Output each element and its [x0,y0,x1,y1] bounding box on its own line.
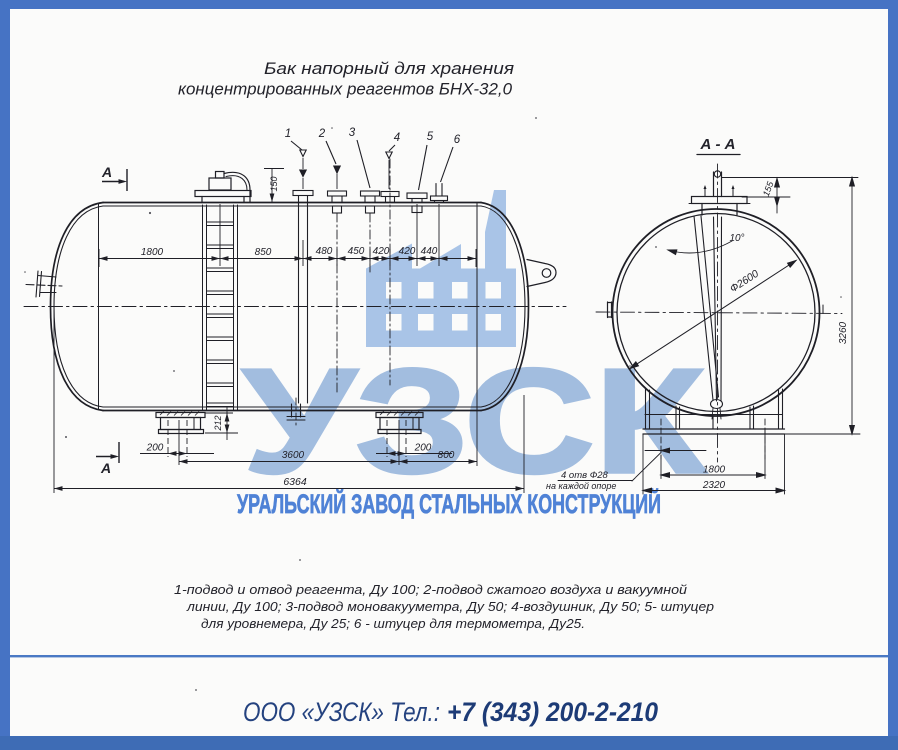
svg-text:3: 3 [349,127,356,139]
svg-text:850: 850 [255,247,272,258]
svg-text:4 отв Ф28: 4 отв Ф28 [561,470,609,481]
svg-text:200: 200 [414,443,432,454]
svg-text:Бак напорный для хранения: Бак напорный для хранения [264,60,514,78]
svg-text:6364: 6364 [283,476,307,488]
svg-text:480: 480 [316,246,333,257]
svg-text:А - А: А - А [700,136,736,153]
svg-text:1-подвод и отвод реагента, Ду: 1-подвод и отвод реагента, Ду 100; 2-под… [174,583,687,597]
svg-text:10°: 10° [729,233,744,244]
svg-text:4: 4 [394,132,400,144]
svg-text:6: 6 [454,134,461,146]
svg-text:3600: 3600 [282,450,305,461]
svg-text:200: 200 [146,443,164,454]
svg-text:800: 800 [438,450,455,461]
svg-text:1800: 1800 [703,465,726,476]
svg-text:440: 440 [421,246,438,257]
svg-text:УРАЛЬСКИЙ ЗАВОД СТАЛЬНЫХ КОНСТ: УРАЛЬСКИЙ ЗАВОД СТАЛЬНЫХ КОНСТРУКЦИЙ [237,489,661,519]
svg-text:450: 450 [348,246,365,257]
svg-text:5: 5 [427,131,434,143]
svg-text:концентрированных реагентов БН: концентрированных реагентов БНХ-32,0 [178,81,513,99]
svg-text:420: 420 [399,246,416,257]
svg-text:+7 (343) 200-2-210: +7 (343) 200-2-210 [447,697,658,727]
svg-text:150: 150 [269,176,279,191]
svg-text:для уровнемера, Ду 25; 6 - шту: для уровнемера, Ду 25; 6 - штуцер для те… [201,617,585,631]
svg-text:2320: 2320 [702,480,726,491]
svg-text:1: 1 [285,128,291,140]
svg-text:3260: 3260 [838,321,849,344]
svg-text:A: A [100,460,111,476]
svg-text:420: 420 [373,246,390,257]
svg-text:A: A [101,164,112,180]
svg-text:1800: 1800 [141,247,164,258]
svg-text:ООО «УЗСК» Тел.:: ООО «УЗСК» Тел.: [243,697,440,727]
svg-text:2: 2 [318,128,326,140]
svg-text:212: 212 [213,415,223,431]
svg-text:на каждой опоре: на каждой опоре [546,481,616,491]
svg-text:линии, Ду 100; 3-подвод монов: линии, Ду 100; 3-подвод моновакууметра, … [186,600,714,614]
